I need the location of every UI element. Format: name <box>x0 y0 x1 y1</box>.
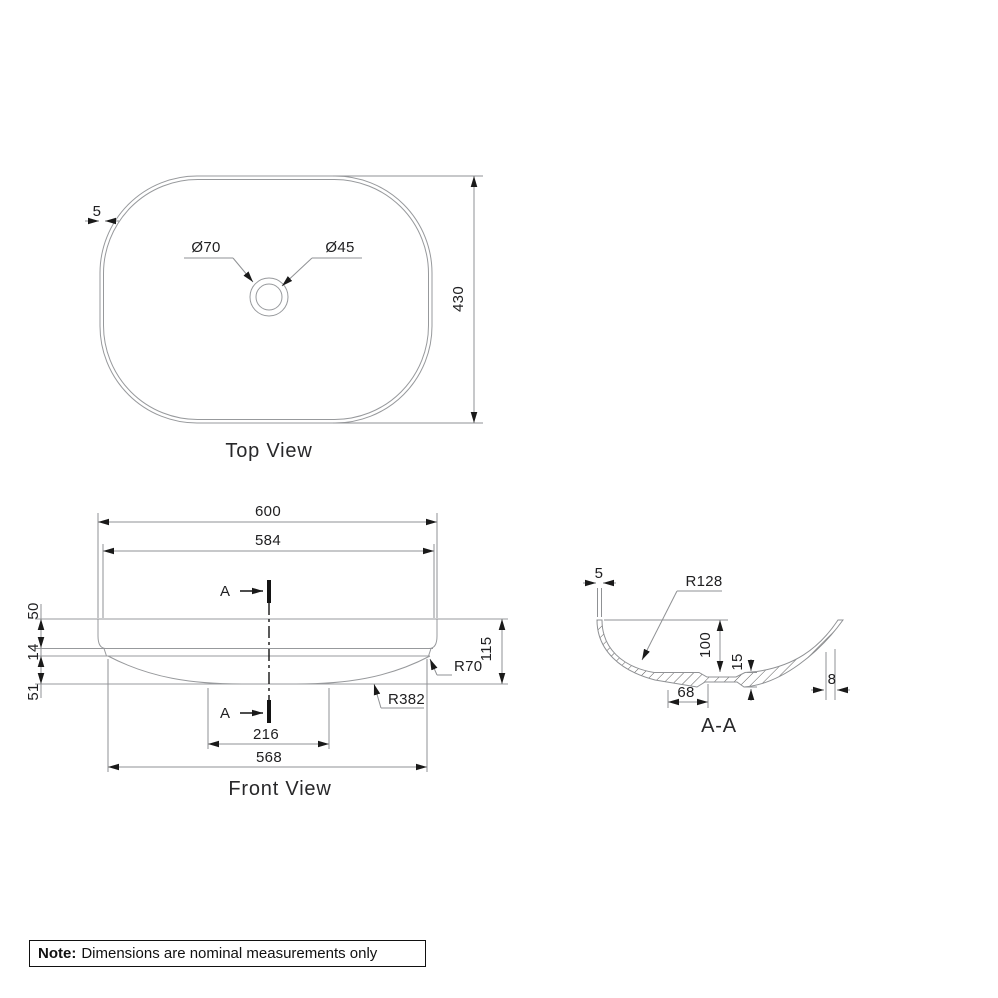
drain-outer-dia-label: Ø70 <box>191 239 220 256</box>
dim-length-label: 430 <box>450 286 467 312</box>
top-view-title: Top View <box>225 440 312 462</box>
dim-rim-thickness-label: 5 <box>93 203 102 220</box>
drain-inner-circle <box>256 284 282 310</box>
dim-base-width-label: 568 <box>256 749 282 766</box>
front-view-title: Front View <box>228 778 331 800</box>
drawing-canvas: 5 430 Ø70 Ø45 Top View <box>0 0 998 998</box>
drain-inner-dia-label: Ø45 <box>325 239 354 256</box>
dim-edge-thickness: 8 <box>811 649 850 700</box>
front-left-wall <box>98 619 106 649</box>
dim-drain-flat-label: 68 <box>677 684 694 701</box>
r70-leader: R70 <box>430 658 482 675</box>
base-radius-label: R382 <box>388 691 425 708</box>
dim-height-stack: 50 14 51 <box>25 602 42 700</box>
dim-rim-thickness: 5 <box>85 203 119 221</box>
dim-upper-height-label: 50 <box>25 602 42 619</box>
section-cut-line: A A <box>220 580 269 723</box>
section-view: 5 R128 100 15 68 <box>583 565 850 737</box>
drain-inner-leader: Ø45 <box>282 239 362 286</box>
front-right-wall <box>429 619 437 649</box>
dim-rim-inner-width-label: 584 <box>255 532 281 549</box>
top-view-inner-outline <box>104 180 429 420</box>
dim-wall-thickness-label: 5 <box>595 565 604 582</box>
dim-edge-thickness-label: 8 <box>828 671 837 688</box>
inner-radius-label: R128 <box>685 573 722 590</box>
top-view: 5 430 Ø70 Ø45 Top View <box>85 176 483 462</box>
note-box: Note: Dimensions are nominal measurement… <box>29 940 426 967</box>
drain-outer-leader: Ø70 <box>184 239 253 282</box>
dim-wall-thickness: 5 <box>583 565 616 617</box>
dim-overall-width-label: 600 <box>255 503 281 520</box>
dim-base-thickness-label: 15 <box>729 653 746 670</box>
dim-lower-height-label: 51 <box>25 683 42 700</box>
dim-inner-depth-label: 100 <box>697 632 714 658</box>
dim-drain-flat: 68 <box>668 684 708 708</box>
note-text: Dimensions are nominal measurements only <box>81 945 377 962</box>
section-letter-bottom: A <box>220 705 230 722</box>
dim-length-430: 430 <box>333 176 483 423</box>
top-view-outer-outline <box>100 176 432 423</box>
note-prefix: Note: <box>38 945 76 962</box>
dim-mid-height-label: 14 <box>25 643 42 660</box>
drawing-sheet: 5 430 Ø70 Ø45 Top View <box>0 0 998 998</box>
front-r70-corner <box>429 649 432 657</box>
r382-leader: R382 <box>374 684 425 708</box>
front-view: 600 584 50 14 51 115 R70 <box>25 503 508 800</box>
corner-radius-label: R70 <box>454 658 482 675</box>
dim-base-flat-width-label: 216 <box>253 726 279 743</box>
section-letter-top: A <box>220 583 230 600</box>
section-view-title: A-A <box>701 715 737 737</box>
